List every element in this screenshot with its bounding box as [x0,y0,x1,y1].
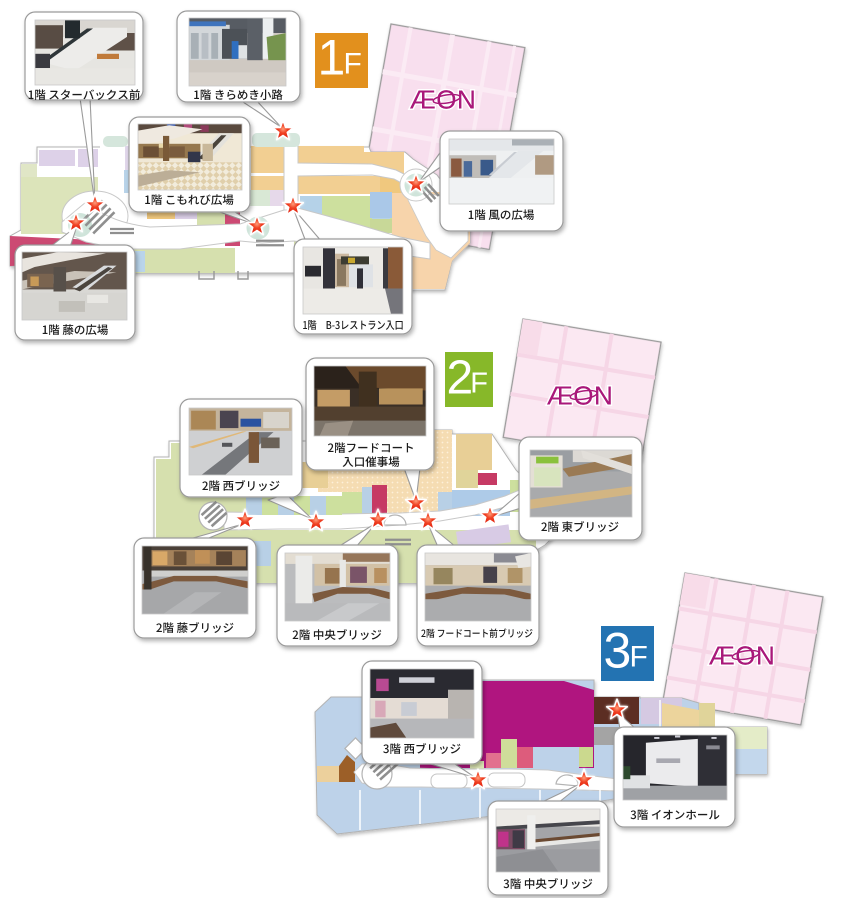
svg-text:F: F [470,368,488,400]
svg-text:ÆON: ÆON [547,380,614,410]
svg-text:2: 2 [447,351,474,404]
svg-text:F: F [629,641,647,674]
svg-text:ÆON: ÆON [410,84,477,114]
svg-text:3: 3 [604,622,632,678]
svg-text:ÆON: ÆON [709,640,776,670]
svg-text:F: F [343,48,361,81]
svg-text:1: 1 [318,29,346,85]
